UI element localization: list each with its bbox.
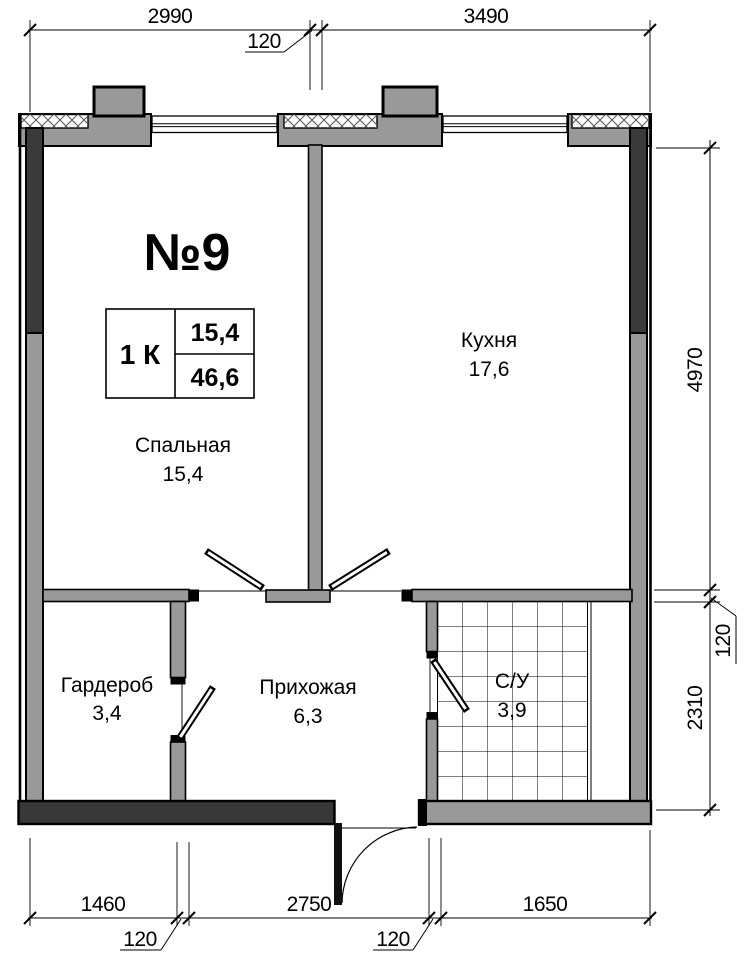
dim-bottom-hallway: 2750 — [287, 893, 332, 916]
interior-doors — [179, 551, 467, 739]
apartment-type-label: 1 К — [120, 339, 161, 370]
room-area-bedroom: 15,4 — [163, 463, 204, 486]
room-label-wardrobe: Гардероб — [61, 674, 153, 697]
floor-plan-drawing: №9 1 К 15,4 46,6 Спальная 15,4 Кухня 17,… — [0, 0, 753, 974]
pilaster — [383, 87, 437, 116]
room-label-kitchen: Кухня — [461, 329, 517, 352]
room-label-bathroom: С/У — [495, 670, 530, 693]
total-area-value: 46,6 — [191, 364, 240, 392]
window — [443, 113, 567, 147]
right-dimension-line: 4970 2310 120 — [654, 140, 736, 816]
entrance-door — [334, 823, 417, 905]
floor-plan-page: №9 1 К 15,4 46,6 Спальная 15,4 Кухня 17,… — [0, 0, 753, 974]
dim-right-wall-thickness: 120 — [712, 624, 735, 658]
dim-bottom-wardrobe: 1460 — [81, 893, 126, 916]
dim-bottom-wall-thickness-1: 120 — [123, 928, 157, 951]
pilaster — [94, 87, 144, 116]
dim-top-wall-thickness: 120 — [247, 30, 281, 53]
dim-top-left: 2990 — [148, 5, 193, 28]
room-label-hallway: Прихожая — [259, 676, 356, 699]
bottom-wall — [19, 799, 652, 826]
apartment-number: №9 — [144, 224, 231, 282]
window — [152, 113, 277, 147]
dim-bottom-bathroom: 1650 — [523, 893, 568, 916]
dim-bottom-wall-thickness-2: 120 — [376, 928, 410, 951]
room-label-bedroom: Спальная — [135, 434, 231, 457]
dim-right-lower: 2310 — [684, 686, 707, 731]
left-wall — [20, 114, 43, 824]
room-area-bathroom: 3,9 — [497, 699, 526, 722]
room-area-hallway: 6,3 — [293, 705, 322, 728]
room-area-wardrobe: 3,4 — [92, 702, 122, 725]
top-wall — [19, 87, 651, 147]
room-area-kitchen: 17,6 — [469, 358, 510, 381]
right-wall — [630, 114, 651, 824]
dim-top-right: 3490 — [464, 5, 509, 28]
living-area-value: 15,4 — [191, 319, 240, 347]
dim-right-upper: 4970 — [684, 348, 707, 393]
info-table: 1 К 15,4 46,6 — [106, 309, 254, 398]
